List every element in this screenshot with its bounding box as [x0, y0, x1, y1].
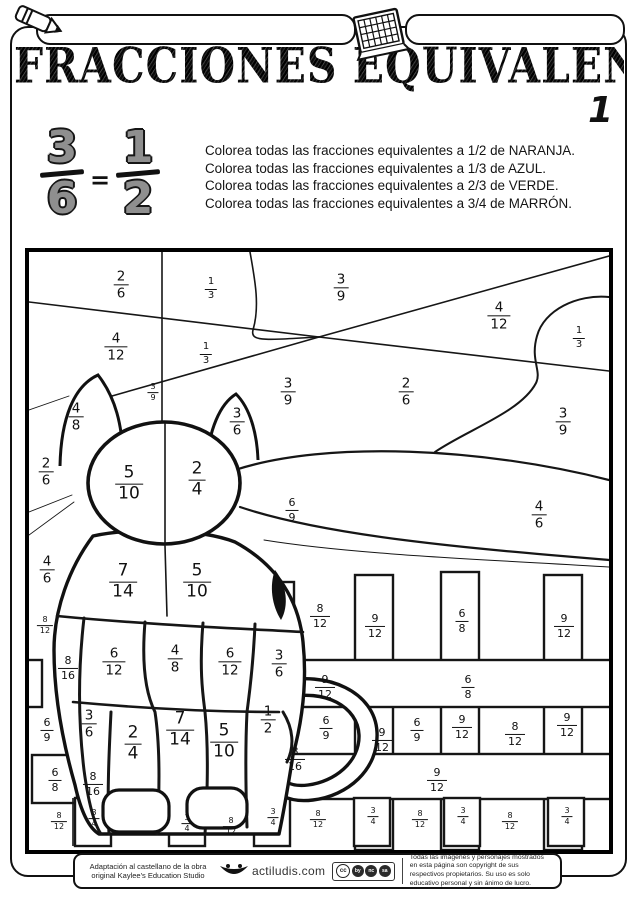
fraction-8-16: 816	[83, 771, 103, 797]
fraction-8-12: 812	[502, 812, 518, 832]
page-number: 1	[588, 90, 613, 131]
fraction-4-8: 48	[168, 643, 183, 674]
fraction-6-12: 612	[218, 646, 241, 677]
example-left-denominator: 6	[47, 179, 78, 219]
name-field[interactable]	[36, 14, 356, 45]
fraction-8-12: 812	[310, 810, 326, 830]
instructions: Colorea todas las fracciones equivalente…	[205, 142, 605, 212]
credit-line-2: original Kaylee's Education Studio	[84, 871, 212, 880]
fraction-3-9: 39	[334, 272, 349, 303]
fraction-6-9: 69	[411, 717, 424, 743]
cc-sa-icon: sa	[379, 865, 391, 877]
fraction-9-12: 912	[372, 727, 392, 753]
instruction-line-2: Colorea todas las fracciones equivalente…	[205, 160, 605, 178]
fraction-3-4: 34	[457, 807, 468, 827]
fraction-1-3: 13	[573, 326, 585, 350]
instruction-line-4: Colorea todas las fracciones equivalente…	[205, 195, 605, 213]
fraction-3-6: 36	[230, 406, 245, 437]
fraction-2-4: 24	[189, 461, 206, 500]
example-left-numerator: 3	[47, 128, 78, 168]
fraction-3-6: 36	[82, 708, 97, 739]
adaptation-credit: Adaptación al castellano de la obra orig…	[84, 862, 212, 880]
example-fraction-right: 1 2	[116, 128, 160, 220]
fraction-9-12: 912	[554, 613, 574, 639]
calendar-icon	[348, 3, 410, 66]
fraction-3-4: 34	[181, 814, 192, 834]
fraction-1-2: 12	[261, 704, 276, 735]
fraction-1-3: 13	[200, 342, 212, 366]
example-right-denominator: 2	[123, 179, 154, 219]
cc-icon: cc	[336, 864, 350, 878]
site-name: actiludis.com	[252, 864, 325, 878]
fraction-5-10: 510	[115, 465, 143, 504]
fraction-3-9: 39	[147, 383, 158, 403]
footer-divider	[402, 858, 403, 884]
fraction-3-4: 34	[561, 807, 572, 827]
fraction-3-9: 39	[556, 406, 571, 437]
fraction-8-16: 816	[285, 746, 305, 772]
fraction-3-4: 34	[267, 808, 278, 828]
fraction-2-4: 24	[125, 725, 142, 764]
example-equivalence: 3 6 = 1 2	[40, 128, 160, 220]
fraction-5-10: 510	[210, 723, 238, 762]
fraction-9-12: 912	[452, 714, 472, 740]
fraction-6-8: 68	[462, 674, 475, 700]
rights-line-2: respectivos propietarios. Su uso es solo…	[410, 871, 551, 888]
fraction-3-4: 34	[367, 807, 378, 827]
fraction-9-12: 912	[557, 712, 577, 738]
fraction-6-9: 69	[286, 497, 299, 523]
fraction-8-12: 812	[51, 812, 67, 832]
fraction-labels-layer: 2613394121341213393926394836265102469464…	[29, 252, 609, 850]
pencil-icon	[8, 4, 72, 57]
worksheet-title: FRACCIONES EQUIVALENTES	[14, 38, 624, 95]
copyright-notice: Todas las imágenes y personajes mostrado…	[410, 854, 551, 888]
credit-line-1: Adaptación al castellano de la obra	[84, 862, 212, 871]
fraction-3-9: 39	[281, 376, 296, 407]
fraction-8-12: 812	[505, 721, 525, 747]
fraction-2-6: 26	[399, 376, 414, 407]
date-field[interactable]	[405, 14, 625, 45]
fraction-6-9: 69	[41, 717, 54, 743]
fraction-2-6: 26	[39, 456, 54, 487]
fraction-4-8: 48	[69, 401, 84, 432]
example-right-numerator: 1	[123, 128, 154, 168]
fraction-6-8: 68	[456, 608, 469, 634]
fraction-4-6: 46	[40, 554, 55, 585]
fraction-3-4: 34	[88, 809, 99, 829]
fraction-3-6: 36	[272, 648, 287, 679]
fraction-8-12: 812	[223, 817, 239, 837]
fraction-4-6: 46	[532, 499, 547, 530]
fraction-6-12: 612	[102, 646, 125, 677]
actiludis-logo: actiludis.com	[219, 863, 325, 879]
fraction-5-10: 510	[183, 563, 211, 602]
fraction-4-12: 412	[104, 331, 127, 362]
cc-nc-icon: nc	[365, 865, 377, 877]
fraction-1-3: 13	[205, 277, 217, 301]
cc-license-badge: cc by nc sa	[332, 862, 395, 881]
fraction-2-6: 26	[114, 269, 129, 300]
instruction-line-3: Colorea todas las fracciones equivalente…	[205, 177, 605, 195]
example-fraction-left: 3 6	[40, 128, 84, 220]
fraction-7-14: 714	[166, 711, 194, 750]
smile-icon	[219, 863, 249, 879]
cc-by-icon: by	[352, 865, 364, 877]
fraction-7-14: 714	[109, 563, 137, 602]
fraction-9-12: 912	[427, 767, 447, 793]
instruction-line-1: Colorea todas las fracciones equivalente…	[205, 142, 605, 160]
fraction-9-12: 912	[365, 613, 385, 639]
fraction-8-12: 812	[310, 603, 330, 629]
fraction-8-16: 816	[58, 655, 78, 681]
equals-sign: =	[90, 166, 110, 194]
fraction-9-12: 912	[315, 674, 335, 700]
fraction-8-12: 812	[37, 616, 53, 636]
footer-credits: Adaptación al castellano de la obra orig…	[73, 853, 562, 889]
coloring-picture: 2613394121341213393926394836265102469464…	[25, 248, 613, 854]
fraction-4-12: 412	[487, 300, 510, 331]
rights-line-1: Todas las imágenes y personajes mostrado…	[410, 854, 551, 871]
fraction-8-12: 812	[412, 810, 428, 830]
fraction-6-9: 69	[320, 715, 333, 741]
fraction-6-8: 68	[49, 767, 62, 793]
